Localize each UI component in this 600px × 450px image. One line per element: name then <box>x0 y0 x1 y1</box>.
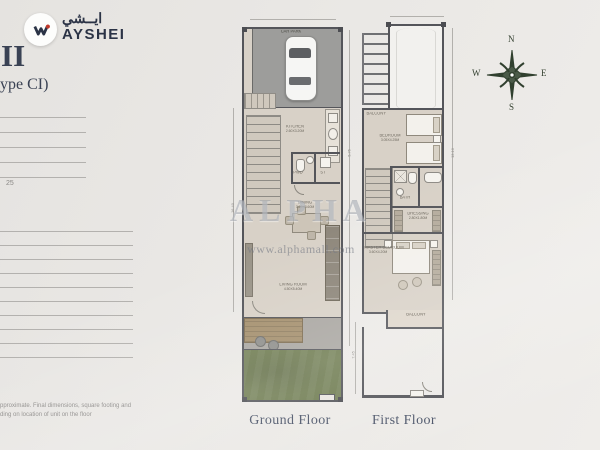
gf-dim-right: 5.75 <box>348 149 352 157</box>
ff-dim-line-right <box>452 28 453 300</box>
brand-name-arabic: ايــشي <box>62 10 102 27</box>
gf-sofa <box>325 225 340 301</box>
ff-closet <box>394 210 403 232</box>
gf-wall <box>314 152 316 182</box>
ff-toilet-icon <box>408 172 417 184</box>
disclaimer-line-1: pproximate. Final dimensions, square foo… <box>0 402 140 411</box>
ff-bedroom-label: BEDROOM 3.05X4.25M <box>376 134 403 142</box>
car-icon <box>285 36 317 101</box>
gf-garden <box>244 349 341 400</box>
ff-dim-left: 7.45 <box>352 351 356 359</box>
ff-wall <box>418 166 420 206</box>
ff-pouf <box>398 280 408 290</box>
area-table-rules-top <box>0 117 86 179</box>
compass-n: N <box>508 34 515 44</box>
gf-terrace-chair <box>255 336 266 347</box>
ff-wall <box>390 166 392 232</box>
ayshei-logo-icon <box>30 19 52 41</box>
ff-pouf <box>412 277 422 287</box>
page-title: II <box>1 38 25 74</box>
ff-bath-label: BATH <box>398 196 413 200</box>
brochure-page: ايــشي AYSHEI II ype CI) 25 pproximate. … <box>0 0 600 450</box>
ff-shower-icon <box>394 170 407 183</box>
ff-front-balcony-label: BALCONY <box>366 112 385 116</box>
ff-gate <box>410 390 424 397</box>
wall-post <box>338 27 343 32</box>
unit-type: ype CI) <box>0 76 48 94</box>
gf-garden-gate <box>319 394 335 401</box>
gf-kitchen-counter <box>325 109 340 163</box>
ff-balcony-label: BALCONY <box>401 313 431 317</box>
ff-wardrobe <box>432 250 441 286</box>
gf-terrace <box>244 317 341 350</box>
disclaimer-line-2: ding on location of unit on the floor <box>0 411 140 420</box>
area-note: 25 <box>6 180 14 187</box>
ff-sink-icon <box>396 188 404 196</box>
gf-wall <box>291 152 293 184</box>
gf-dim-line-right <box>349 30 350 346</box>
ff-bed <box>406 114 442 136</box>
gf-living-label: LIVING ROOM 4.50X5.40M <box>275 283 312 291</box>
watermark-text: ALPHA <box>226 192 376 229</box>
wall-post <box>441 22 446 27</box>
ground-floor-caption: Ground Floor <box>230 413 350 429</box>
ff-wall <box>390 166 442 168</box>
gf-kitchen-label: KITCHEN 2.60X3.20M <box>279 125 310 133</box>
brand-logo <box>24 13 57 46</box>
wall-post <box>242 27 247 32</box>
ff-wall <box>390 206 442 208</box>
gf-sink-icon <box>306 156 314 164</box>
ff-dressing-label: DRESSING 2.80X1.80M <box>403 212 433 220</box>
gf-washer-icon <box>320 157 331 168</box>
gf-entry-door-arc <box>252 301 265 314</box>
ff-closet <box>432 210 441 232</box>
gf-powder-label: PWD <box>291 171 305 175</box>
compass-e: E <box>541 68 547 78</box>
wall-post <box>386 22 391 27</box>
gf-wall <box>291 182 340 184</box>
ff-dim-right: 13.10 <box>452 148 456 158</box>
first-floor-caption: First Floor <box>354 413 454 429</box>
gf-store-label: ST <box>317 171 329 175</box>
watermark-url: www.alphamall.com <box>226 242 376 257</box>
gf-entrance-steps <box>244 93 276 109</box>
ff-side-table <box>430 240 438 248</box>
wall-post <box>242 397 247 402</box>
ff-open-to-below <box>362 327 444 398</box>
ff-tub-icon <box>424 172 442 183</box>
gf-chair <box>307 231 316 240</box>
wall-post <box>338 397 343 402</box>
compass-rose: N W E S <box>478 36 546 114</box>
ff-open-terrace <box>388 24 444 114</box>
gf-car-park-label: CAR PARK <box>271 30 312 34</box>
ff-dim-line-top <box>390 16 444 17</box>
area-table-rules-bottom <box>0 231 133 358</box>
ff-bed <box>406 142 442 164</box>
brand-name: AYSHEI <box>62 26 125 43</box>
ff-nightstand <box>433 135 441 143</box>
ff-wall <box>364 232 442 234</box>
compass-s: S <box>509 102 514 112</box>
disclaimer-text: pproximate. Final dimensions, square foo… <box>0 402 140 420</box>
compass-w: W <box>472 68 481 78</box>
gf-dim-line-top <box>250 19 336 20</box>
